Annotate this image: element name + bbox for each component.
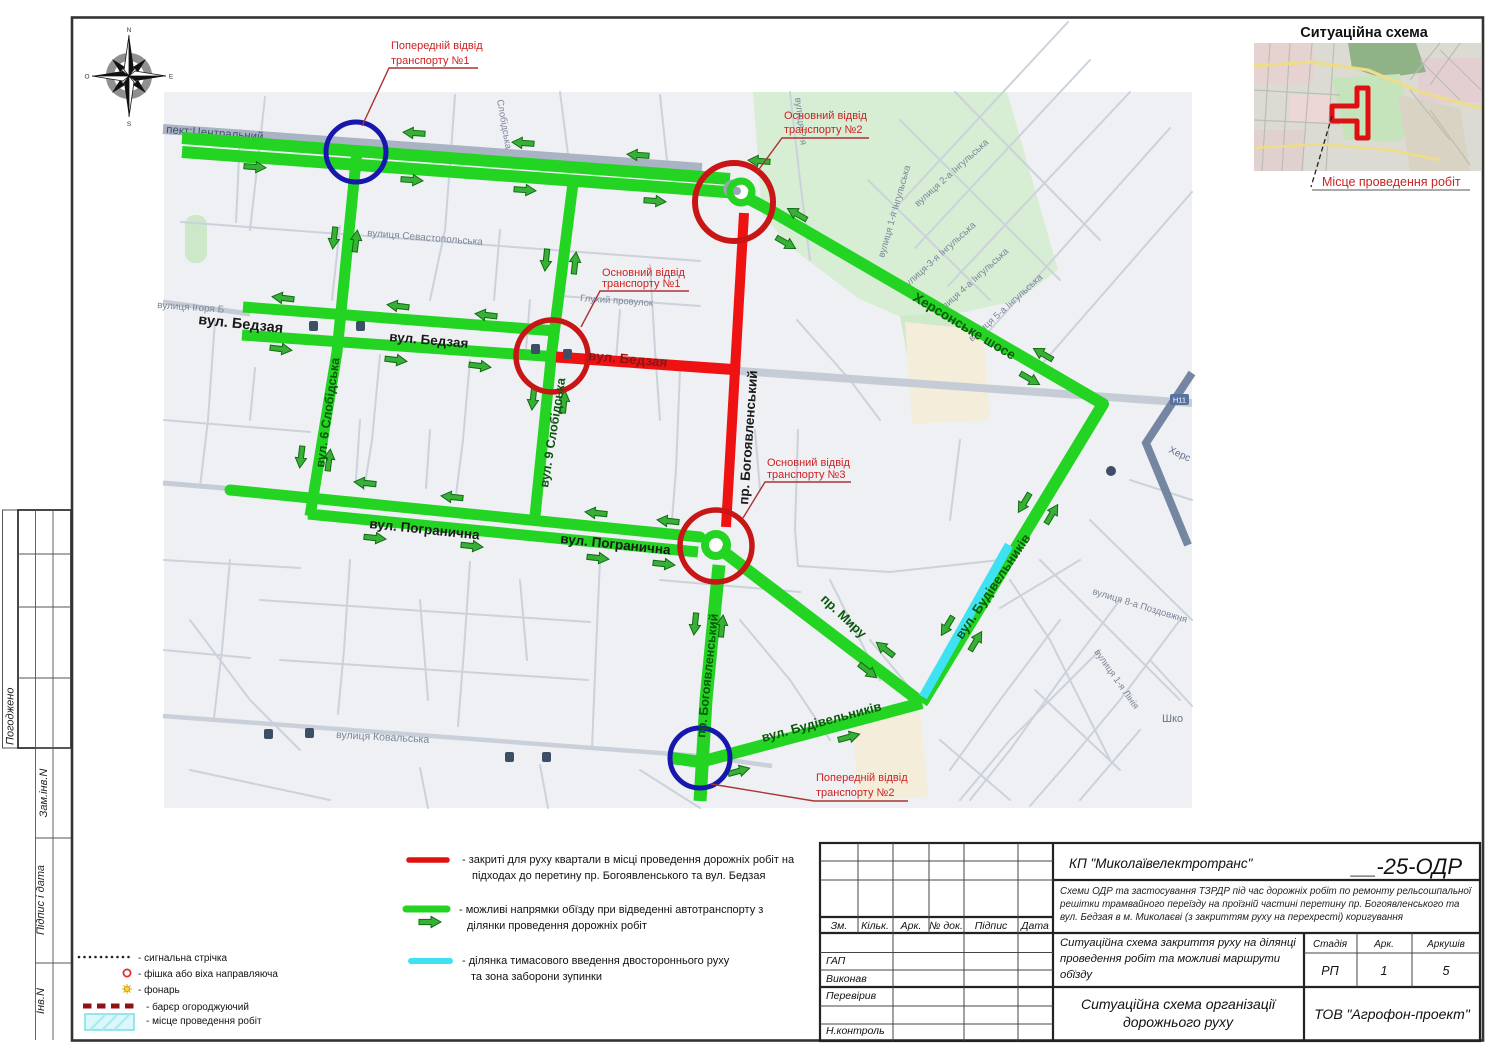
- svg-text:транспорту №3: транспорту №3: [767, 469, 845, 481]
- svg-text:КП "Миколаївелектротранс": КП "Миколаївелектротранс": [1069, 856, 1254, 871]
- svg-text:ділянки проведення дорожніх ро: ділянки проведення дорожніх робіт: [467, 920, 647, 932]
- svg-text:ТОВ "Агрофон-проект": ТОВ "Агрофон-проект": [1314, 1006, 1471, 1022]
- svg-text:Арк.: Арк.: [1373, 939, 1394, 950]
- svg-text:Арк.: Арк.: [900, 920, 922, 932]
- svg-text:та зона заборони зупинки: та зона заборони зупинки: [471, 971, 602, 983]
- svg-text:Зм.: Зм.: [831, 920, 848, 932]
- svg-text:Підпис: Підпис: [975, 920, 1008, 932]
- svg-text:транспорту №2: транспорту №2: [816, 787, 894, 799]
- svg-text:Зам.інв.N: Зам.інв.N: [38, 769, 50, 818]
- svg-text:- місце проведення робіт: - місце проведення робіт: [146, 1015, 262, 1027]
- svg-text:Н11: Н11: [1173, 396, 1186, 405]
- svg-text:__-25-ОДР: __-25-ОДР: [1350, 854, 1462, 879]
- svg-text:Аркушів: Аркушів: [1426, 939, 1465, 950]
- svg-text:Виконав: Виконав: [826, 973, 867, 985]
- svg-text:Основний відвід: Основний відвід: [784, 110, 868, 122]
- svg-text:- можливі напрямки обїзду при: - можливі напрямки обїзду при відведенні…: [459, 904, 763, 916]
- svg-text:E: E: [169, 74, 174, 81]
- svg-text:Шко: Шко: [1162, 713, 1183, 725]
- svg-text:обїзду: обїзду: [1060, 969, 1093, 981]
- svg-text:Інв.N: Інв.N: [35, 988, 47, 1014]
- svg-text:Основний відвід: Основний відвід: [767, 457, 851, 469]
- svg-text:- ділянка тимасового введення: - ділянка тимасового введення двосторонн…: [462, 955, 730, 967]
- svg-text:S: S: [127, 121, 132, 128]
- svg-text:транспорту №2: транспорту №2: [784, 124, 862, 136]
- svg-text:решітки трамвайного переїзду: решітки трамвайного переїзду на проїзній…: [1059, 899, 1460, 910]
- svg-text:проведення робіт та можливі ма: проведення робіт та можливі маршрути: [1060, 953, 1281, 965]
- svg-text:підходах до перетину пр. Богоя: підходах до перетину пр. Богоявленського…: [472, 870, 765, 882]
- svg-text:Попередній відвід: Попередній відвід: [816, 772, 908, 784]
- svg-text:Н.контроль: Н.контроль: [826, 1025, 885, 1037]
- svg-text:Дата: Дата: [1020, 920, 1049, 932]
- svg-text:транспорту №1: транспорту №1: [391, 55, 469, 67]
- svg-text:5: 5: [1443, 964, 1450, 978]
- svg-text:Ситуаційна схема: Ситуаційна схема: [1300, 25, 1428, 41]
- svg-text:Перевірив: Перевірив: [826, 990, 877, 1002]
- svg-text:Стадія: Стадія: [1313, 939, 1348, 950]
- svg-text:1: 1: [1381, 964, 1388, 978]
- svg-text:- закриті для руху квартали в: - закриті для руху квартали в місці пров…: [462, 854, 795, 866]
- svg-text:дорожнього руху: дорожнього руху: [1123, 1014, 1234, 1030]
- svg-text:транспорту №1: транспорту №1: [602, 278, 680, 290]
- svg-text:вул. Бедзая в м. Миколаєві (з: вул. Бедзая в м. Миколаєві (з закриттям …: [1060, 912, 1404, 923]
- svg-text:Ситуаційна схема закриття руху: Ситуаційна схема закриття руху на ділянц…: [1060, 937, 1296, 949]
- svg-text:Кільк.: Кільк.: [861, 920, 889, 932]
- svg-text:ГАП: ГАП: [826, 955, 846, 967]
- svg-text:- фонарь: - фонарь: [138, 984, 180, 996]
- svg-text:- сигнальна стрічка: - сигнальна стрічка: [138, 953, 228, 964]
- svg-text:- барєр огороджуючий: - барєр огороджуючий: [146, 1001, 249, 1013]
- svg-text:Підпис і дата: Підпис і дата: [35, 865, 47, 935]
- svg-text:№ док.: № док.: [929, 920, 963, 932]
- svg-text:Ситуаційна схема організації: Ситуаційна схема організації: [1081, 996, 1277, 1012]
- svg-text:Схеми ОДР та застосування ТЗРД: Схеми ОДР та застосування ТЗРДР під час …: [1060, 886, 1473, 897]
- svg-text:N: N: [127, 27, 132, 34]
- svg-text:РП: РП: [1321, 964, 1339, 978]
- svg-text:Погоджено: Погоджено: [5, 688, 17, 745]
- svg-text:- фішка або віха направляюча: - фішка або віха направляюча: [138, 968, 278, 980]
- svg-text:Місце проведення робіт: Місце проведення робіт: [1322, 175, 1461, 189]
- svg-text:O: O: [84, 74, 89, 81]
- svg-text:Попередній відвід: Попередній відвід: [391, 40, 483, 52]
